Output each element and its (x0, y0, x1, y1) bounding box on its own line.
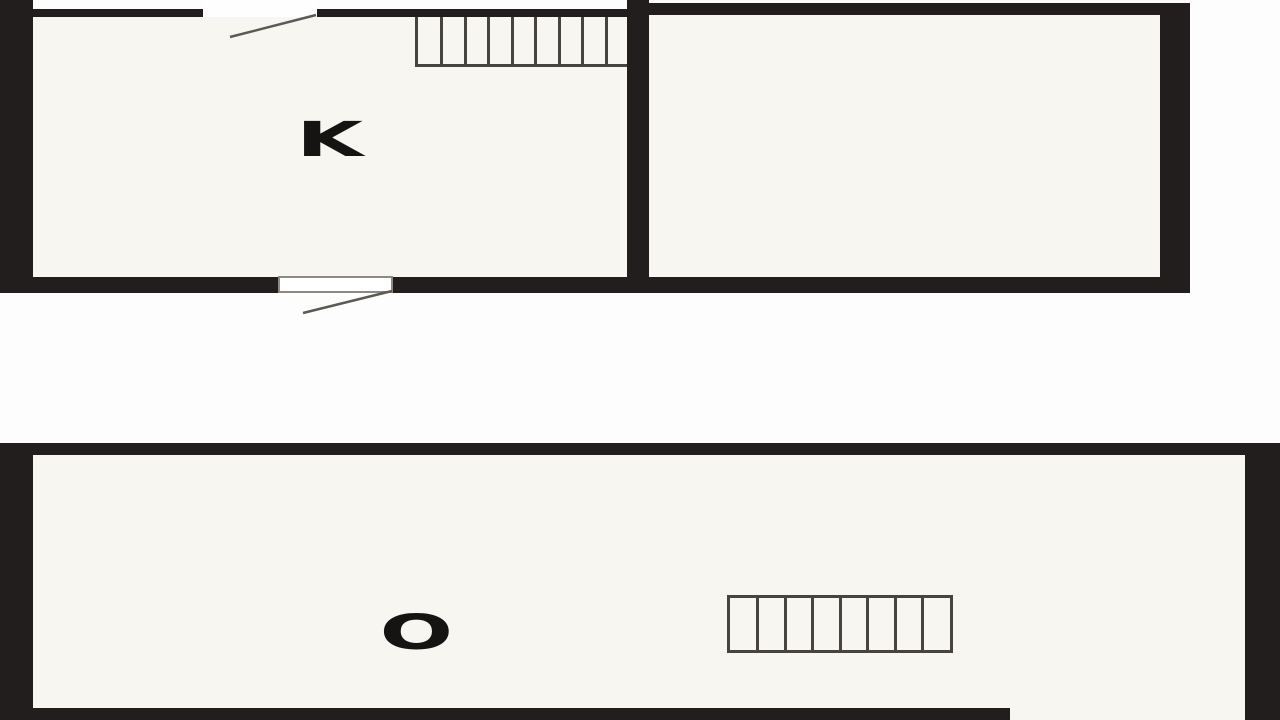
staircase-lower (727, 595, 953, 653)
wall-upper-bottom-right-segment (393, 277, 1190, 293)
wall-upper-bottom-left-segment (0, 277, 278, 293)
stair-tread-line (784, 598, 787, 650)
stair-tread-line (440, 17, 443, 64)
stair-tread-line (487, 17, 490, 64)
stair-tread-line (511, 17, 514, 64)
stair-tread-line (558, 17, 561, 64)
stair-tread-line (866, 598, 869, 650)
wall-upper-top-right-room (627, 3, 1190, 15)
stair-tread-line (921, 598, 924, 650)
room-upper-right (649, 15, 1160, 277)
room-lower (33, 455, 1245, 720)
stair-tread-line (605, 17, 608, 64)
room-k-label: K (280, 116, 380, 164)
wall-upper-top-left-segment (20, 9, 203, 17)
stair-tread-line (839, 598, 842, 650)
room-o-label: O (366, 609, 466, 657)
wall-lower-left (0, 443, 33, 720)
stair-tread-line (464, 17, 467, 64)
door-swing-upper-bottom (303, 291, 392, 313)
wall-upper-right (1160, 3, 1190, 293)
stair-tread-line (894, 598, 897, 650)
door-opening-upper-top (203, 0, 317, 17)
wall-upper-left (0, 0, 33, 292)
wall-upper-interior (627, 0, 649, 292)
wall-lower-bottom-cut (33, 708, 1010, 720)
stair-tread-line (756, 598, 759, 650)
wall-upper-top-right-segment (317, 9, 630, 17)
stair-tread-line (811, 598, 814, 650)
wall-lower-right (1245, 443, 1280, 720)
wall-lower-top (0, 443, 1280, 455)
staircase-upper (415, 17, 630, 67)
floor-plan-image: K O (0, 0, 1280, 720)
stair-tread-line (534, 17, 537, 64)
stair-tread-line (581, 17, 584, 64)
door-threshold-upper-bottom (278, 276, 393, 293)
